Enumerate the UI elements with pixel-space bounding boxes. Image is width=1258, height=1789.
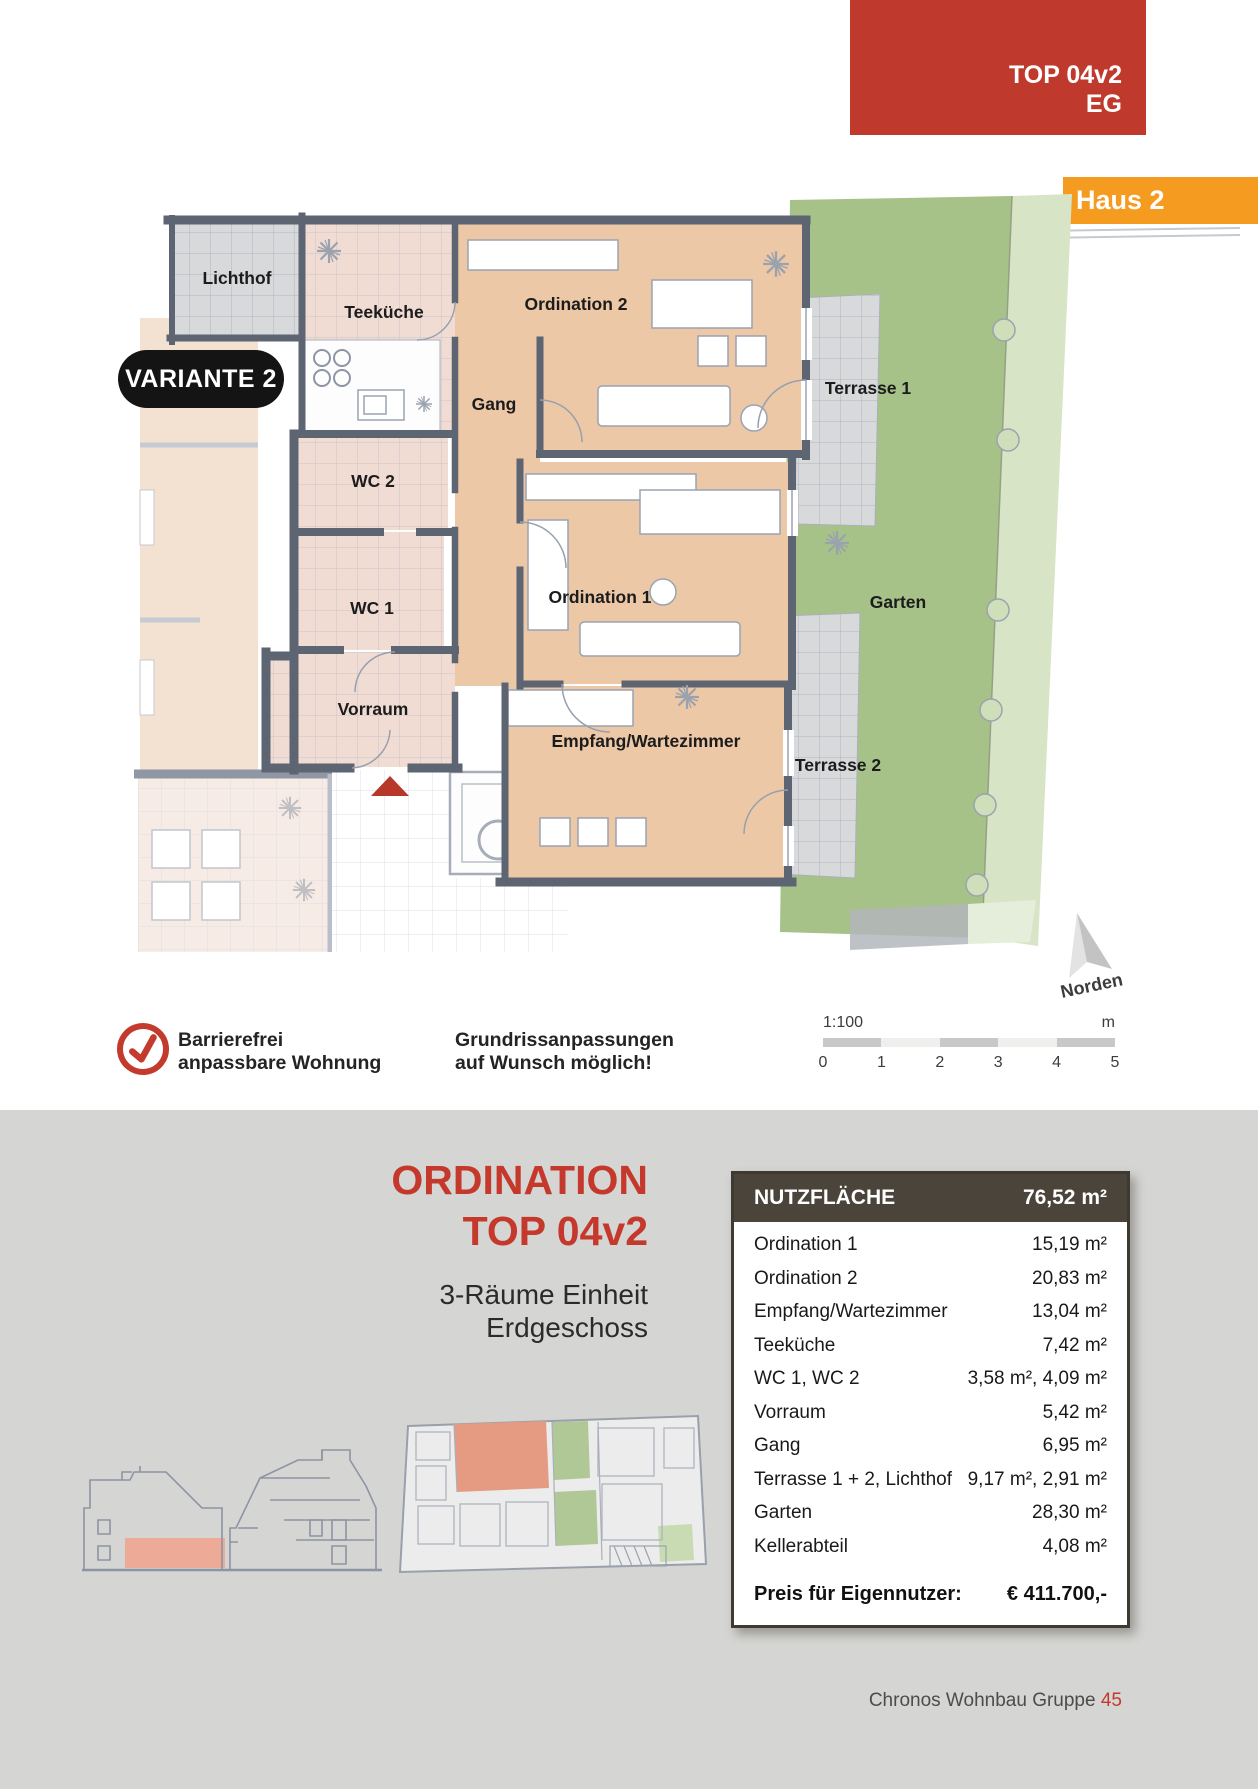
table-row: Garten28,30 m²	[754, 1502, 1107, 1536]
scale-bar: 1:100 m 0 1 2 3 4 5	[823, 1014, 1115, 1076]
checkmark-icon	[114, 1020, 172, 1078]
layout-note-line1: Grundrissanpassungen	[455, 1029, 674, 1052]
room-label-ordination1: Ordination 1	[548, 587, 651, 607]
row-label: Ordination 2	[754, 1268, 858, 1290]
footer-company: Chronos Wohnbau Gruppe	[869, 1690, 1101, 1711]
area-table-header-value: 76,52 m²	[1023, 1186, 1107, 1210]
neighbor-unit-bottom	[134, 774, 334, 952]
scale-bar-segments	[823, 1038, 1115, 1047]
layout-note-line2: auf Wunsch möglich!	[455, 1052, 674, 1075]
row-value: 15,19 m²	[1032, 1234, 1107, 1256]
row-value: 5,42 m²	[1043, 1402, 1107, 1424]
brochure-page: TOP 04v2 EG Haus 2 VARIANTE 2	[0, 0, 1258, 1789]
scale-ticks: 0 1 2 3 4 5	[823, 1054, 1115, 1074]
section-title-line2: TOP 04v2	[300, 1206, 648, 1257]
row-label: Vorraum	[754, 1402, 826, 1424]
room-label-garten: Garten	[870, 592, 926, 612]
row-label: Terrasse 1 + 2, Lichthof	[754, 1469, 952, 1491]
north-label: Norden	[1059, 969, 1125, 1002]
section-subtitle-line1: 3-Räume Einheit	[300, 1278, 648, 1311]
section-title: ORDINATION TOP 04v2	[300, 1155, 648, 1257]
row-label: Teeküche	[754, 1335, 835, 1357]
scale-tick: 1	[877, 1054, 886, 1072]
price-value: € 411.700,-	[1007, 1583, 1107, 1606]
room-label-wc2: WC 2	[351, 471, 395, 491]
room-label-ordination2: Ordination 2	[524, 294, 627, 314]
row-label: Kellerabteil	[754, 1536, 848, 1558]
row-label: Empfang/Wartezimmer	[754, 1301, 948, 1323]
row-value: 9,17 m², 2,91 m²	[968, 1469, 1107, 1491]
layout-adaptation-note: Grundrissanpassungen auf Wunsch möglich!	[455, 1029, 674, 1075]
scale-ratio: 1:100	[823, 1014, 863, 1032]
table-row: Terrasse 1 + 2, Lichthof9,17 m², 2,91 m²	[754, 1469, 1107, 1503]
table-row: Vorraum5,42 m²	[754, 1402, 1107, 1436]
table-row: Kellerabteil4,08 m²	[754, 1536, 1107, 1570]
table-row: Ordination 115,19 m²	[754, 1234, 1107, 1268]
area-table-body: Ordination 115,19 m² Ordination 220,83 m…	[734, 1222, 1127, 1606]
scale-tick: 3	[994, 1054, 1003, 1072]
scale-tick: 0	[819, 1054, 828, 1072]
row-label: Gang	[754, 1435, 800, 1457]
area-table-header: NUTZFLÄCHE 76,52 m²	[734, 1174, 1127, 1222]
room-label-lichthof: Lichthof	[202, 268, 271, 288]
room-label-teekueche: Teeküche	[344, 302, 424, 322]
overview-drawings	[70, 1408, 710, 1578]
room-label-empfang: Empfang/Wartezimmer	[552, 731, 741, 751]
area-table: NUTZFLÄCHE 76,52 m² Ordination 115,19 m²…	[731, 1171, 1130, 1628]
section-title-line1: ORDINATION	[300, 1155, 648, 1206]
variante-badge: VARIANTE 2	[118, 350, 284, 408]
row-label: WC 1, WC 2	[754, 1368, 860, 1390]
row-value: 3,58 m², 4,09 m²	[968, 1368, 1107, 1390]
room-label-terrasse2: Terrasse 2	[795, 755, 882, 775]
variante-badge-label: VARIANTE 2	[125, 365, 277, 394]
north-arrow: Norden	[1059, 913, 1125, 1002]
table-row: Empfang/Wartezimmer13,04 m²	[754, 1301, 1107, 1335]
row-label: Ordination 1	[754, 1234, 858, 1256]
area-table-header-label: NUTZFLÄCHE	[754, 1186, 895, 1210]
row-value: 20,83 m²	[1032, 1268, 1107, 1290]
section-subtitle-line2: Erdgeschoss	[300, 1311, 648, 1344]
room-label-terrasse1: Terrasse 1	[825, 378, 912, 398]
row-value: 6,95 m²	[1043, 1435, 1107, 1457]
price-row: Preis für Eigennutzer: € 411.700,-	[754, 1583, 1107, 1606]
scale-tick: 4	[1052, 1054, 1061, 1072]
floor-plan: Norden Lichthof Teeküche Ordination 2 Ga…	[0, 190, 1258, 1010]
row-value: 4,08 m²	[1043, 1536, 1107, 1558]
scale-unit: m	[1102, 1014, 1115, 1032]
scale-tick: 2	[935, 1054, 944, 1072]
price-label: Preis für Eigennutzer:	[754, 1583, 962, 1606]
room-label-wc1: WC 1	[350, 598, 394, 618]
row-value: 28,30 m²	[1032, 1502, 1107, 1524]
row-label: Garten	[754, 1502, 812, 1524]
site-plan-overview	[400, 1416, 706, 1572]
table-row: Teeküche7,42 m²	[754, 1335, 1107, 1369]
row-value: 13,04 m²	[1032, 1301, 1107, 1323]
table-row: Ordination 220,83 m²	[754, 1268, 1107, 1302]
table-row: WC 1, WC 23,58 m², 4,09 m²	[754, 1368, 1107, 1402]
barrier-free-note: Barrierefrei anpassbare Wohnung	[178, 1029, 381, 1075]
section-subtitle: 3-Räume Einheit Erdgeschoss	[300, 1278, 648, 1344]
unit-banner: TOP 04v2 EG	[850, 0, 1146, 135]
room-label-vorraum: Vorraum	[338, 699, 409, 719]
room-label-gang: Gang	[472, 394, 517, 414]
scale-tick: 5	[1111, 1054, 1120, 1072]
building-elevation	[82, 1450, 382, 1570]
unit-banner-floor: EG	[1086, 90, 1122, 119]
table-row: Gang6,95 m²	[754, 1435, 1107, 1469]
page-footer: Chronos Wohnbau Gruppe 45	[869, 1690, 1122, 1712]
footer-page-number: 45	[1101, 1690, 1122, 1711]
barrier-free-line1: Barrierefrei	[178, 1029, 381, 1052]
unit-banner-top: TOP 04v2	[1009, 61, 1122, 90]
barrier-free-line2: anpassbare Wohnung	[178, 1052, 381, 1075]
row-value: 7,42 m²	[1043, 1335, 1107, 1357]
